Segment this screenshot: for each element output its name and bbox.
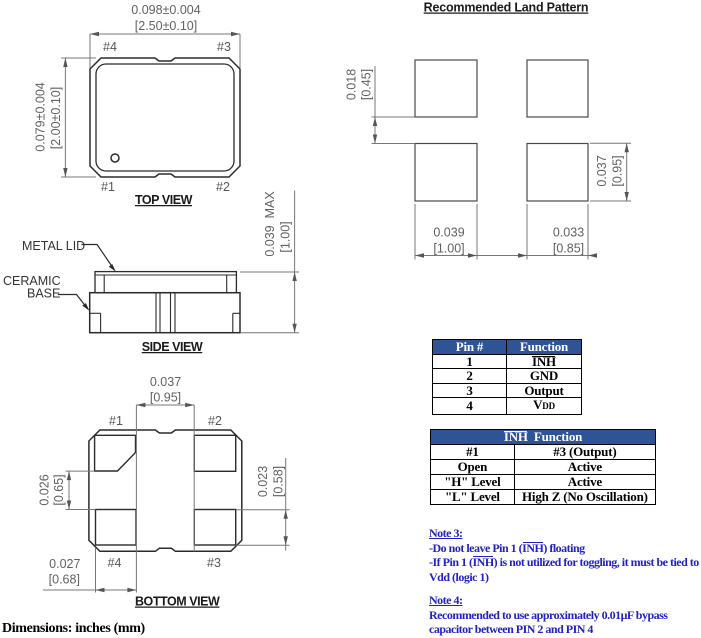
svg-text:#2: #2 xyxy=(216,180,230,194)
svg-text:#4: #4 xyxy=(103,40,117,54)
svg-text:0.027: 0.027 xyxy=(49,557,80,571)
svg-text:#1: #1 xyxy=(101,180,115,194)
svg-text:0.079±0.004: 0.079±0.004 xyxy=(34,82,48,151)
svg-text:BASE: BASE xyxy=(27,287,60,301)
svg-text:[0.45]: [0.45] xyxy=(360,69,374,100)
svg-text:Recommended Land Pattern: Recommended Land Pattern xyxy=(424,1,589,15)
svg-text:0.039 MAX: 0.039 MAX xyxy=(263,191,277,257)
svg-text:[0.68]: [0.68] xyxy=(49,573,80,587)
svg-text:0.098±0.004: 0.098±0.004 xyxy=(131,3,200,17)
svg-text:[1.00]: [1.00] xyxy=(279,221,293,252)
svg-text:[0.85]: [0.85] xyxy=(553,242,584,256)
svg-text:[2.50±0.10]: [2.50±0.10] xyxy=(135,19,197,33)
svg-text:BOTTOM VIEW: BOTTOM VIEW xyxy=(135,595,220,609)
svg-text:[2.00±0.10]: [2.00±0.10] xyxy=(49,87,63,149)
svg-text:SIDE VIEW: SIDE VIEW xyxy=(142,340,203,354)
svg-text:TOP VIEW: TOP VIEW xyxy=(135,193,193,207)
svg-text:0.018: 0.018 xyxy=(345,69,359,100)
svg-text:0.039: 0.039 xyxy=(433,226,464,240)
svg-text:#3: #3 xyxy=(217,40,231,54)
svg-text:0.037: 0.037 xyxy=(150,375,181,389)
svg-text:0.026: 0.026 xyxy=(37,474,51,505)
svg-text:METAL LID: METAL LID xyxy=(22,239,85,253)
svg-text:#3: #3 xyxy=(207,556,221,570)
svg-text:0.023: 0.023 xyxy=(256,466,270,497)
svg-text:[0.95]: [0.95] xyxy=(150,391,181,405)
svg-text:0.037: 0.037 xyxy=(595,155,609,186)
svg-text:[0.58]: [0.58] xyxy=(271,466,285,497)
svg-text:#1: #1 xyxy=(109,414,123,428)
svg-text:#4: #4 xyxy=(108,556,122,570)
svg-text:#2: #2 xyxy=(208,414,222,428)
svg-text:0.033: 0.033 xyxy=(553,226,584,240)
svg-text:[1.00]: [1.00] xyxy=(433,242,464,256)
svg-text:[0.95]: [0.95] xyxy=(611,155,625,186)
svg-text:[0.65]: [0.65] xyxy=(52,474,66,505)
